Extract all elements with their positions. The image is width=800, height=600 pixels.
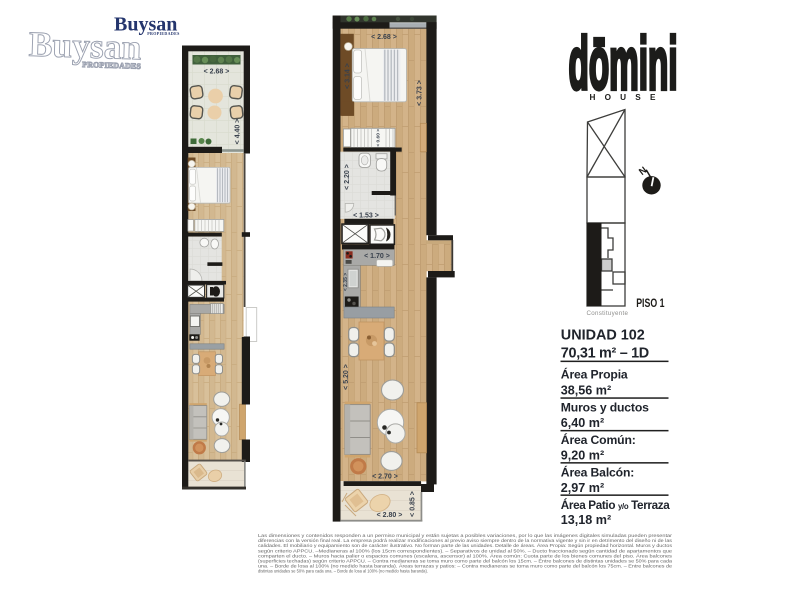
svg-text:Área Propia: Área Propia bbox=[561, 367, 628, 382]
svg-text:< 1.70 >: < 1.70 > bbox=[364, 253, 390, 260]
svg-text:< 4.40 >: < 4.40 > bbox=[234, 119, 241, 145]
svg-text:< 0.85 >: < 0.85 > bbox=[410, 491, 417, 517]
svg-text:< 5.20 >: < 5.20 > bbox=[343, 364, 350, 390]
svg-text:HOUSE: HOUSE bbox=[590, 93, 665, 102]
svg-text:< 3.14 >: < 3.14 > bbox=[345, 63, 352, 89]
svg-text:Área Patio y/o Terraza: Área Patio y/o Terraza bbox=[561, 499, 670, 512]
svg-text:Área Balcón:: Área Balcón: bbox=[561, 464, 634, 479]
svg-text:< 0.60 >: < 0.60 > bbox=[376, 129, 382, 147]
svg-text:Área Común:: Área Común: bbox=[561, 432, 636, 447]
svg-text:calidades. El mobiliario y equ: calidades. El mobiliario y equipamiento … bbox=[258, 542, 673, 548]
svg-text:70,31 m² – 1D: 70,31 m² – 1D bbox=[561, 345, 649, 361]
svg-text:Constituyente: Constituyente bbox=[587, 310, 629, 317]
svg-text:13,18 m²: 13,18 m² bbox=[561, 513, 611, 527]
svg-text:< 2.35 >: < 2.35 > bbox=[343, 273, 349, 291]
svg-text:UNIDAD 102: UNIDAD 102 bbox=[561, 328, 645, 344]
svg-text:< 1.53 >: < 1.53 > bbox=[353, 213, 379, 220]
svg-text:< 2.68 >: < 2.68 > bbox=[204, 69, 230, 76]
svg-text:38,56 m²: 38,56 m² bbox=[561, 384, 611, 398]
svg-text:6,40 m²: 6,40 m² bbox=[561, 416, 604, 430]
svg-text:comparten el ducto. – Muros ha: comparten el ducto. – Muros hacia palier… bbox=[258, 552, 673, 558]
svg-text:PISO 1: PISO 1 bbox=[636, 297, 664, 311]
svg-text:distintas unidades se 50% para: distintas unidades se 50% para cada una.… bbox=[258, 569, 428, 574]
svg-text:PROPIEDADES: PROPIEDADES bbox=[147, 31, 180, 36]
svg-text:Muros y ductos: Muros y ductos bbox=[561, 400, 649, 414]
svg-text:< 3.73 >: < 3.73 > bbox=[417, 80, 424, 106]
svg-text:< 2.80 >: < 2.80 > bbox=[377, 512, 403, 519]
svg-text:< 2.70 >: < 2.70 > bbox=[372, 474, 398, 481]
svg-text:< 2.68 >: < 2.68 > bbox=[371, 34, 397, 41]
svg-text:2,97 m²: 2,97 m² bbox=[561, 481, 604, 495]
svg-text:< 2.20 >: < 2.20 > bbox=[344, 164, 351, 190]
svg-text:una. – Borde de losa al 100% (: una. – Borde de losa al 100% (no medido … bbox=[258, 563, 673, 569]
svg-text:PROPIEDADES: PROPIEDADES bbox=[82, 60, 141, 71]
svg-text:9,20 m²: 9,20 m² bbox=[561, 448, 604, 462]
